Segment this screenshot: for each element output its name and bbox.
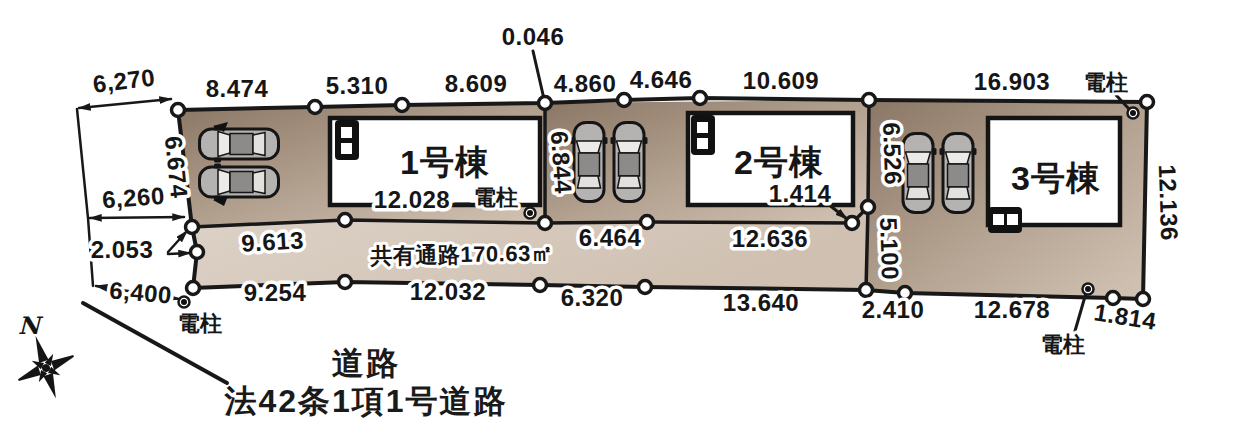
dim-inner-6464: 6.464 [579,224,642,251]
dim-top-10609: 10.609 [743,67,819,94]
boundary-point [1137,293,1150,306]
boundary-point [694,92,707,105]
building-3: 3号棟 [988,118,1120,233]
dim-bottom-12032: 12.032 [410,278,486,305]
utility-pole-dot [525,208,536,219]
boundary-point [539,97,552,110]
utility-pole-dot [1128,108,1139,119]
dim-leader-0046 [533,51,544,99]
dim-top-5310: 5.310 [326,72,389,99]
building-1-label: 1号棟 [400,143,490,181]
boundary-point [539,217,552,230]
boundary-point [862,201,875,214]
dim-top-16903: 16.903 [974,68,1050,95]
boundary-point [618,94,631,107]
boundary-point [846,217,859,230]
dim-cross-6844: 6.844 [546,130,577,194]
dim-top-4860: 4.860 [554,70,617,97]
boundary-point [641,216,654,229]
boundary-point [187,282,200,295]
entrance-icon [691,115,715,155]
dim-bottom-2410: 2.410 [862,296,925,323]
site-plan-page: 1号棟 2号棟 3号棟 [0,0,1240,433]
utility-pole-dot [179,297,190,308]
car-icon [200,164,279,201]
boundary-point [860,284,873,297]
dim-right-12136: 12.136 [1154,164,1184,241]
car-icon [940,134,977,213]
dim-bottom-9254: 9.254 [244,279,307,306]
boundary-point [534,279,547,292]
dim-arrow-2053-lower [168,253,190,254]
lot2-lot3-boundary [868,100,869,207]
dim-inner-12028: 12.028 [374,186,450,213]
dim-cross-5100: 5.100 [875,217,904,280]
utility-pole-dot [1083,284,1094,295]
boundary-point [863,94,876,107]
dim-west-6270: 6,270 [91,63,156,97]
compass: N [7,311,84,408]
compass-north-label: N [18,311,44,340]
dim-line-6260 [90,217,184,218]
road-label: 道路 [331,345,400,381]
site-plan-svg: 1号棟 2号棟 3号棟 [0,0,1240,433]
dim-top-4646: 4.646 [630,66,693,93]
boundary-point [339,276,352,289]
boundary-point [339,214,352,227]
boundary-point [1141,96,1154,109]
dim-cross-6526: 6.526 [878,122,907,185]
road-classification-label: 法42条1項1号道路 [223,383,507,419]
boundary-point [191,246,204,259]
dim-bottom-12678: 12.678 [974,296,1050,323]
dim-line-6270 [79,99,171,108]
dim-west-6674: 6.674 [160,135,193,200]
utility-pole-label-bottom-right: 電柱 [1041,332,1085,357]
dim-top-8609: 8.609 [445,70,508,97]
boundary-point [309,101,322,114]
entrance-icon [988,207,1022,233]
boundary-point [172,104,185,117]
dim-top-0046: 0.046 [502,23,565,50]
car-icon [611,123,648,202]
dim-inner-9613: 9.613 [241,226,305,256]
dim-top-8474: 8.474 [206,75,269,102]
boundary-point [639,281,652,294]
dim-inner-1414: 1.414 [769,180,832,207]
dim-arrow-2053-upper [168,231,187,252]
utility-pole-label-bottom-left: 電柱 [178,311,222,336]
building-2-label: 2号棟 [734,143,824,181]
entrance-icon [335,120,359,160]
dim-bottom-13640: 13.640 [723,289,799,316]
dim-inner-12636: 12.636 [732,225,808,252]
building-3-label: 3号棟 [1011,159,1101,197]
utility-pole-label-mid: 電柱 [474,185,518,210]
dim-west-6400: 6,400 [108,276,173,308]
dim-west-6260: 6,260 [101,182,165,213]
boundary-point [186,221,199,234]
dim-bottom-6320: 6.320 [561,284,624,311]
dim-west-2053: 2.053 [91,236,154,263]
car-icon [200,126,279,163]
passage-east-boundary [866,207,868,290]
shared-passage-label: 共有通路170.63㎡ [369,240,553,268]
boundary-point [396,99,409,112]
utility-pole-label-top-right: 電柱 [1084,70,1128,95]
